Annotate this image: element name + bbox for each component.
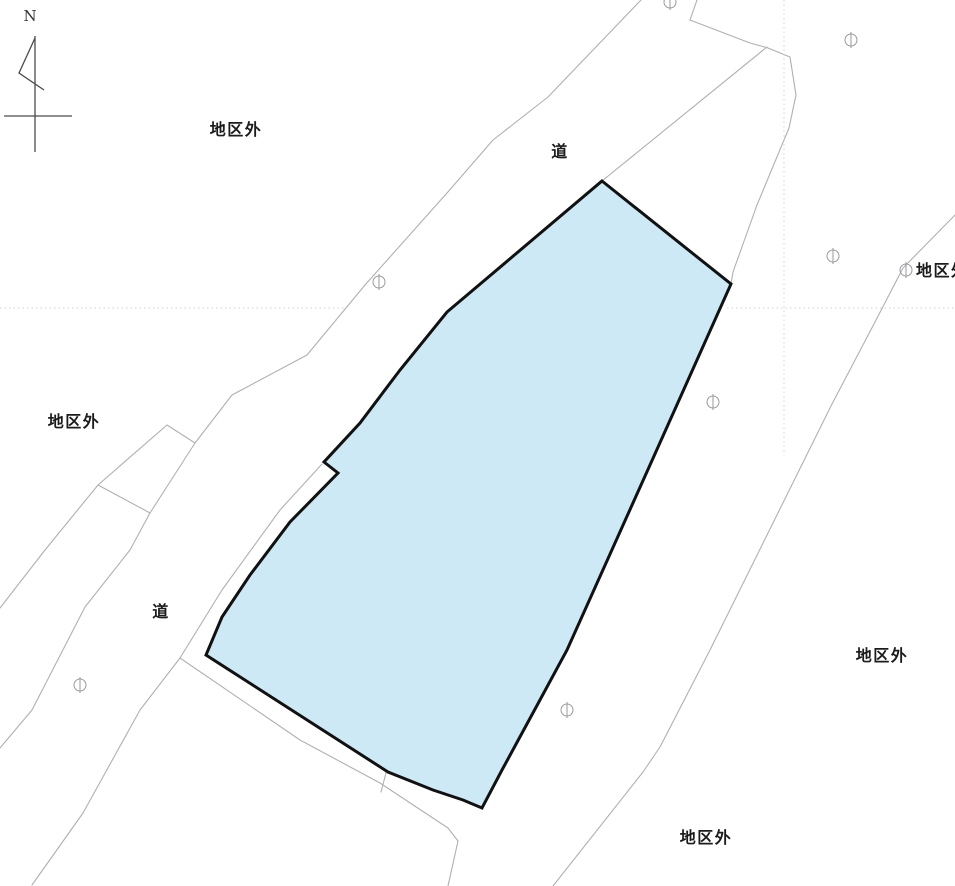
highlighted-parcel bbox=[206, 181, 731, 808]
cadastral-map-canvas: N 地区外道地区外道地区外地区外地区外 bbox=[0, 0, 955, 886]
cadastral-boundary-line bbox=[690, 0, 768, 48]
cadastral-boundary-line bbox=[0, 485, 98, 608]
cadastral-boundary-line bbox=[32, 658, 180, 885]
cadastral-boundary-line bbox=[98, 425, 195, 513]
north-arrow bbox=[19, 38, 44, 90]
outside-district-label: 地区外 bbox=[210, 116, 263, 140]
outside-district-label: 地区外 bbox=[680, 824, 733, 848]
north-label: N bbox=[23, 7, 36, 25]
road-label: 道 bbox=[152, 598, 170, 622]
map-svg bbox=[0, 0, 955, 886]
outside-district-label: 地区外 bbox=[48, 408, 101, 432]
cadastral-boundary-line bbox=[731, 48, 796, 284]
road-label: 道 bbox=[551, 138, 569, 162]
outside-district-label: 地区外 bbox=[856, 642, 909, 666]
cadastral-boundary-line bbox=[381, 773, 386, 792]
cadastral-boundary-line bbox=[602, 47, 767, 181]
outside-district-label: 地区外 bbox=[916, 257, 955, 281]
